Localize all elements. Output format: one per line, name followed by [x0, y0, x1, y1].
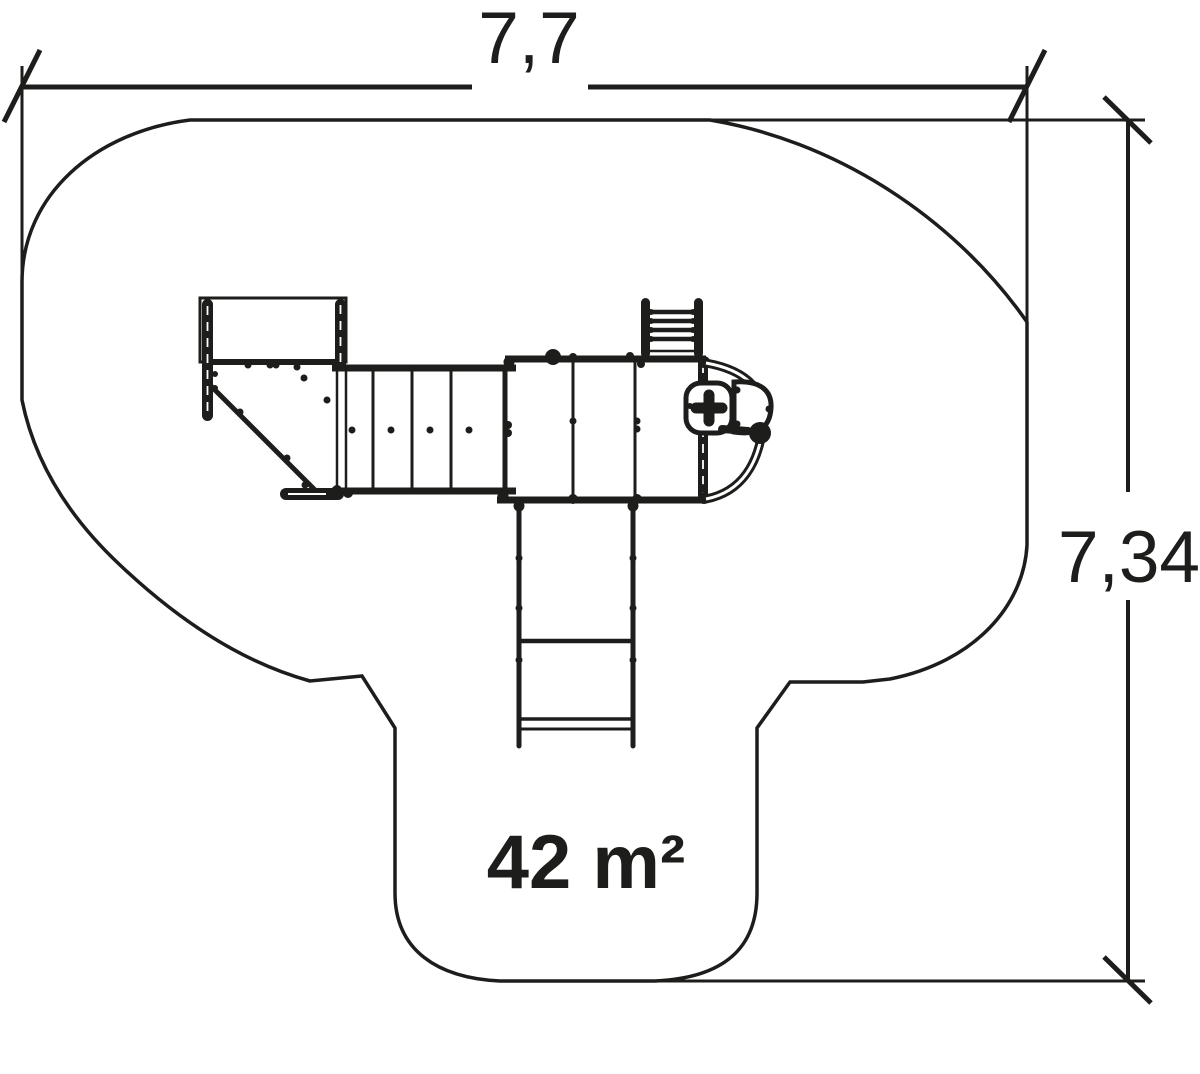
slide-lower-run	[514, 501, 639, 747]
upper-deck	[200, 298, 346, 500]
bolt-dots	[212, 362, 331, 489]
slide-diagonal-edge	[211, 386, 316, 491]
seat-knob	[749, 422, 771, 444]
deck-rail-outline	[200, 298, 346, 362]
seat-stub	[722, 429, 748, 431]
bolt-dots	[498, 349, 711, 504]
height-dimension-label: 7,34	[1058, 517, 1200, 598]
playground-plan-drawing: 7,7 7,34 42 m²	[0, 0, 1200, 1074]
play-structure	[200, 298, 773, 746]
ladder-rail-right	[694, 298, 703, 358]
climbing-ladder	[641, 298, 703, 358]
main-platform	[497, 349, 710, 504]
bridge	[332, 365, 516, 499]
bolt-dots	[332, 365, 512, 499]
width-dimension-label: 7,7	[478, 0, 579, 79]
plan-canvas: 7,7 7,34 42 m²	[0, 0, 1200, 1074]
ladder-rail-left	[641, 298, 650, 358]
area-label: 42 m²	[487, 820, 686, 905]
